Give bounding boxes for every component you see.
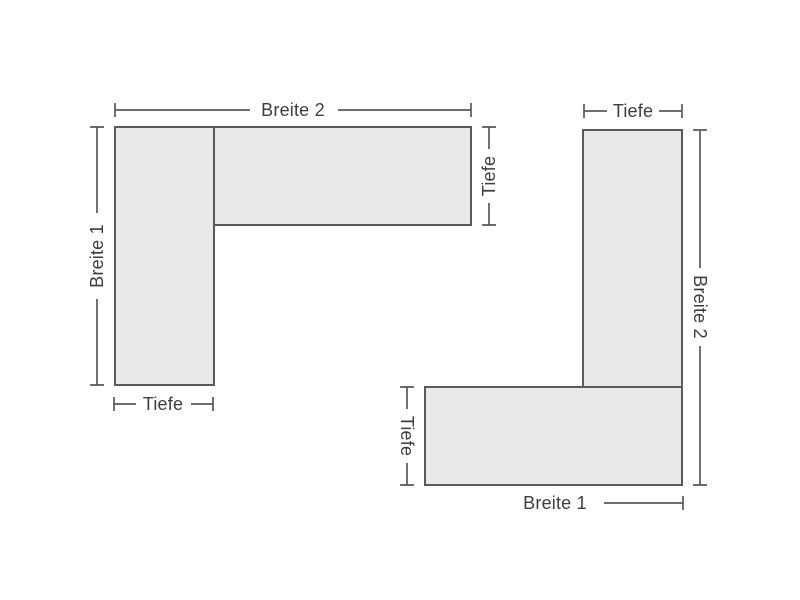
right-diagram-horizontal-panel bbox=[425, 387, 682, 485]
left-tiefe-right-label: Tiefe bbox=[479, 156, 499, 196]
left-tiefe-bottom-label: Tiefe bbox=[143, 394, 183, 414]
left-breite1-label: Breite 1 bbox=[87, 224, 107, 288]
right-tiefe-top-label: Tiefe bbox=[613, 101, 653, 121]
dimension-diagram-page: Breite 2 Breite 1 Tiefe Tiefe Tiefe Brei… bbox=[0, 0, 800, 600]
left-diagram-vertical-panel bbox=[115, 127, 214, 385]
right-tiefe-left-label: Tiefe bbox=[397, 416, 417, 456]
right-diagram-vertical-panel bbox=[583, 130, 682, 387]
right-breite1-label: Breite 1 bbox=[523, 493, 587, 513]
furniture-dimension-diagram: Breite 2 Breite 1 Tiefe Tiefe Tiefe Brei… bbox=[0, 0, 800, 600]
left-breite2-label: Breite 2 bbox=[261, 100, 325, 120]
right-breite2-label: Breite 2 bbox=[690, 275, 710, 339]
left-diagram-horizontal-panel bbox=[214, 127, 471, 225]
